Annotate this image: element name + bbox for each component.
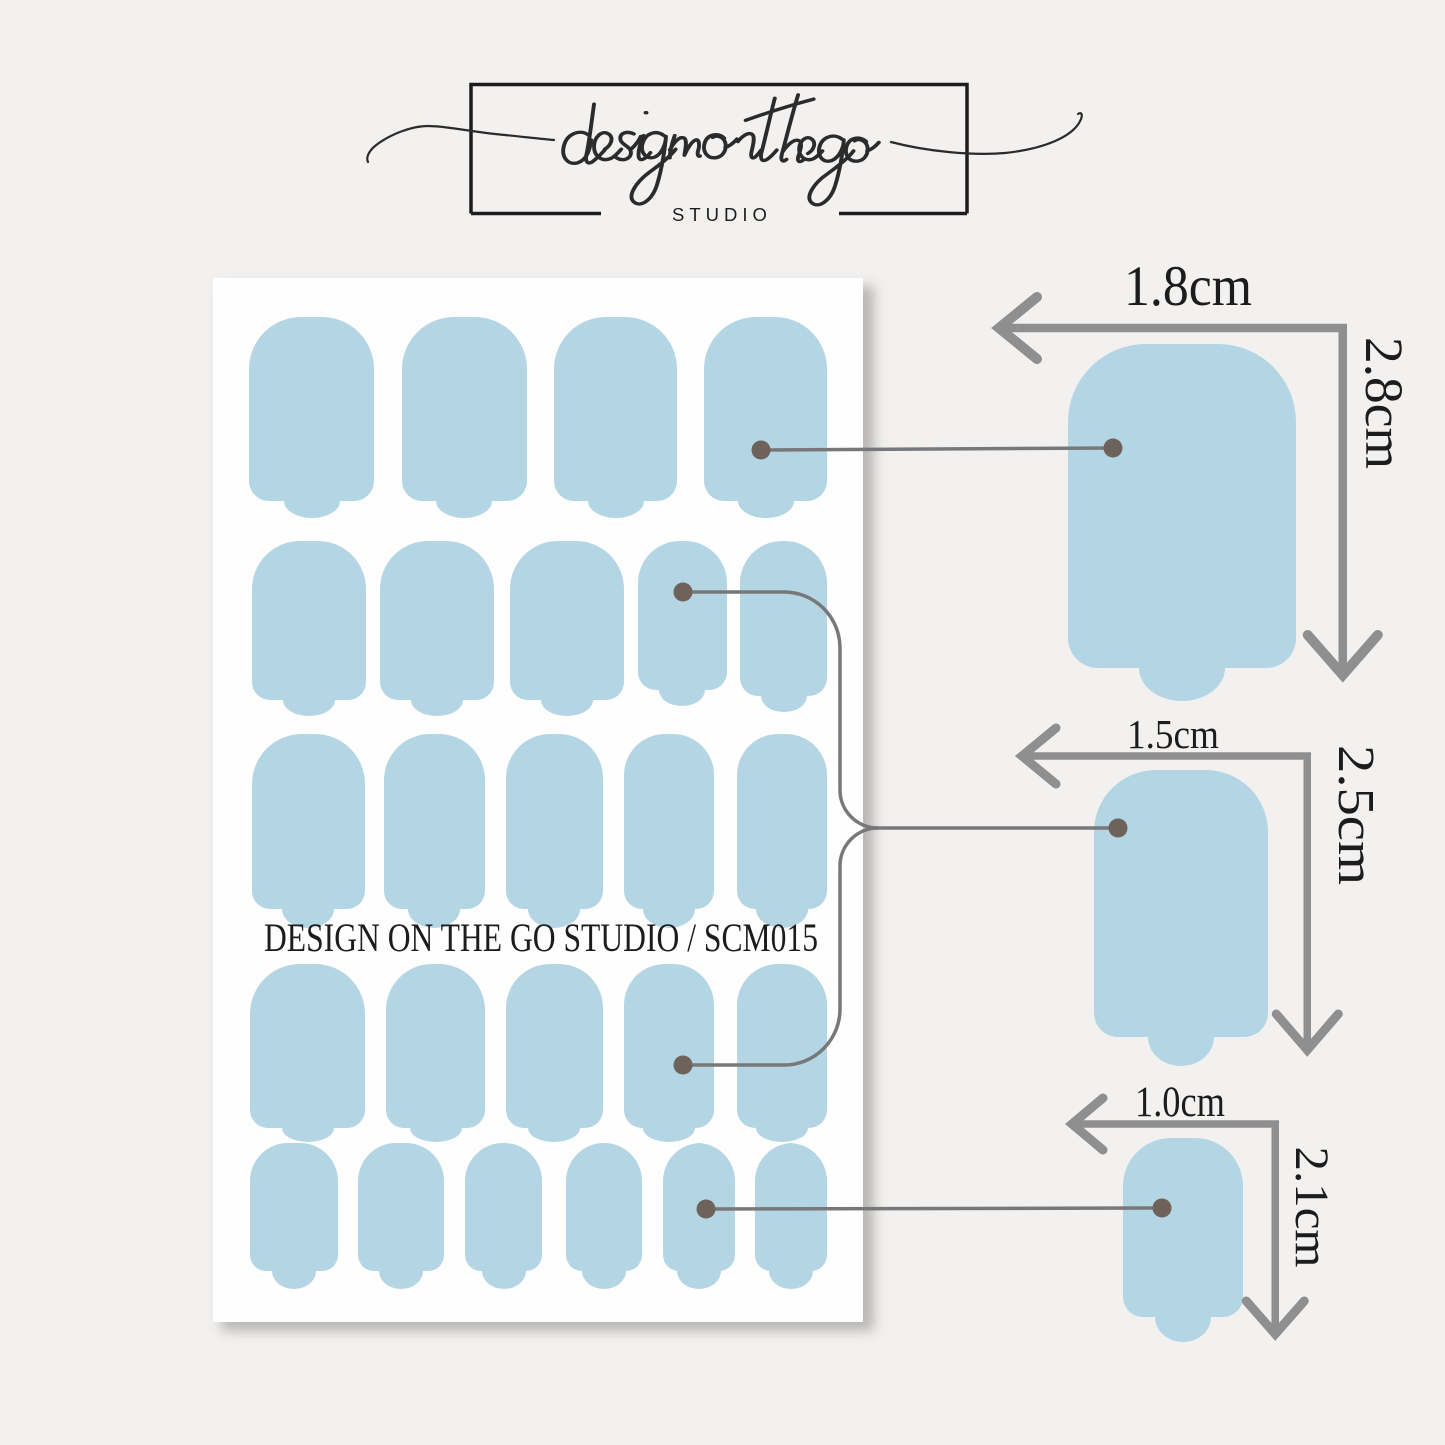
- svg-text:2.5cm: 2.5cm: [1327, 745, 1384, 885]
- svg-text:1.5cm: 1.5cm: [1127, 711, 1219, 757]
- svg-text:2.1cm: 2.1cm: [1285, 1147, 1338, 1268]
- svg-text:2.8cm: 2.8cm: [1354, 337, 1414, 469]
- svg-text:1.8cm: 1.8cm: [1124, 255, 1252, 318]
- svg-text:DESIGN ON THE GO STUDIO / SCM0: DESIGN ON THE GO STUDIO / SCM015: [264, 915, 818, 960]
- svg-text:1.0cm: 1.0cm: [1135, 1079, 1225, 1126]
- svg-text:STUDIO: STUDIO: [672, 204, 772, 225]
